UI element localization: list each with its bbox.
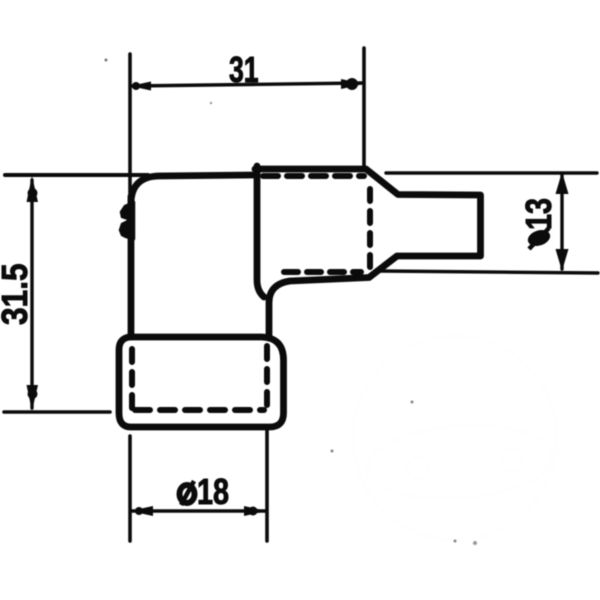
svg-text:31: 31 [229,49,259,90]
svg-text:31.5: 31.5 [0,263,35,325]
svg-text:13: 13 [518,198,559,230]
svg-text:18: 18 [197,471,229,512]
